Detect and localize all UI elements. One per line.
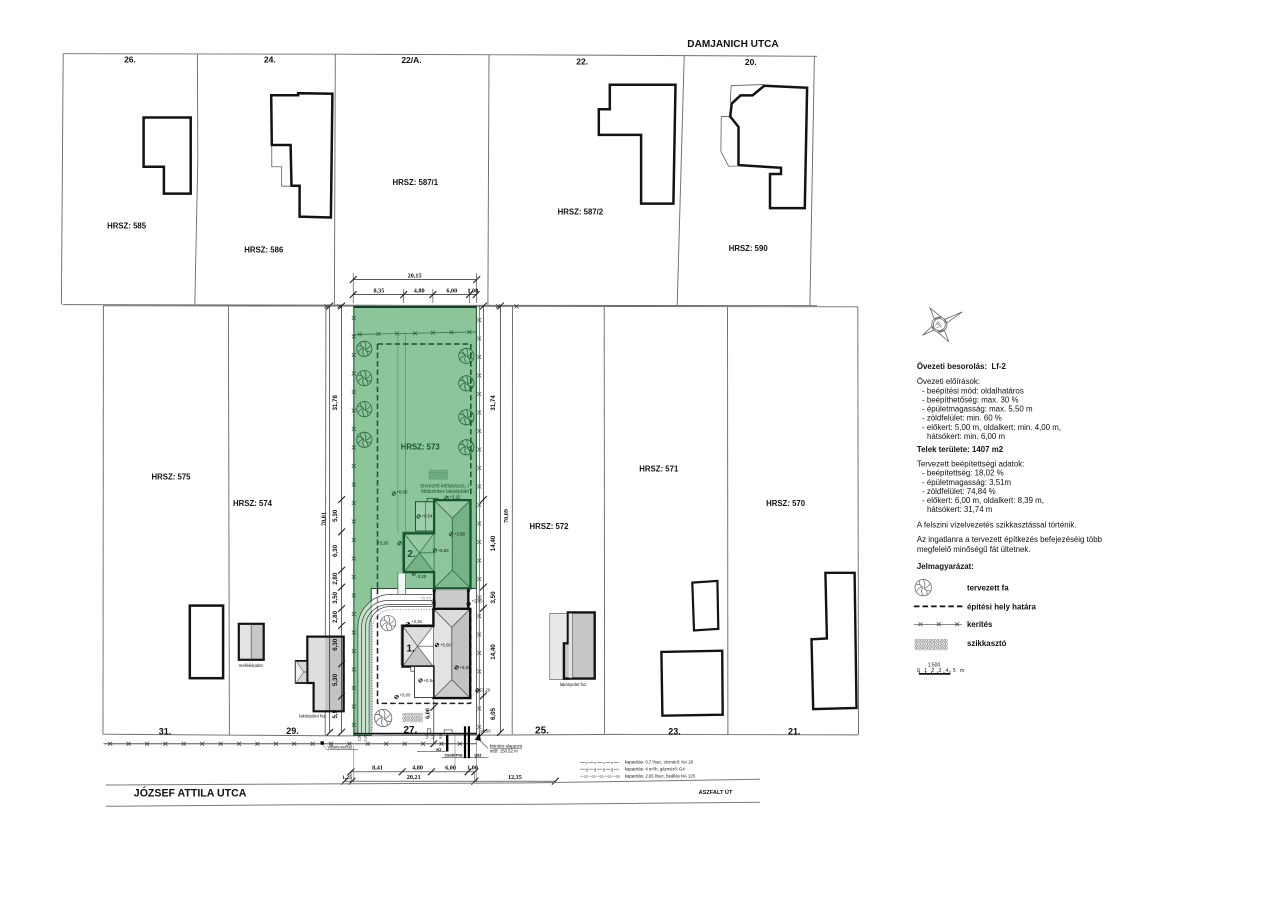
svg-text:3,50: 3,50 xyxy=(332,591,339,604)
svg-text:2.: 2. xyxy=(407,549,416,560)
svg-text:+5,60: +5,60 xyxy=(460,665,471,670)
svg-text:- előkert: 6,00 m, oldalkert:: - előkert: 6,00 m, oldalkert: 8,39 m, xyxy=(922,496,1044,505)
svg-text:építési hely határa: építési hely határa xyxy=(967,602,1036,611)
svg-text:cs: cs xyxy=(584,775,588,779)
svg-text:HRSZ: 585: HRSZ: 585 xyxy=(107,222,147,231)
svg-text:lakóépület fsz.: lakóépület fsz. xyxy=(299,714,326,719)
svg-text:JÓZSEF ATTILA UTCA: JÓZSEF ATTILA UTCA xyxy=(134,787,247,800)
svg-text:8,41: 8,41 xyxy=(372,764,383,771)
svg-text:HRSZ: 573: HRSZ: 573 xyxy=(401,442,441,451)
svg-text:+5,63: +5,63 xyxy=(438,548,449,553)
svg-text:cs: cs xyxy=(608,775,612,779)
svg-text:HRSZ: 574: HRSZ: 574 xyxy=(233,499,273,508)
svg-text:6,30: 6,30 xyxy=(332,544,339,557)
svg-text:v: v xyxy=(586,761,588,765)
svg-text:szikkasztó: szikkasztó xyxy=(967,639,1007,648)
svg-text:6,05: 6,05 xyxy=(490,707,497,720)
svg-text:földszintes lakóépület: földszintes lakóépület xyxy=(421,489,469,495)
svg-text:14,40: 14,40 xyxy=(490,535,497,551)
svg-text:+0,00: +0,00 xyxy=(397,489,408,494)
svg-text:+0,54: +0,54 xyxy=(424,678,435,683)
svg-text:14,40: 14,40 xyxy=(490,644,497,660)
svg-text:6,00: 6,00 xyxy=(445,764,456,771)
svg-text:megfelelő minőségű fát ültetne: megfelelő minőségű fát ültetnek. xyxy=(917,545,1031,554)
svg-text:g: g xyxy=(611,768,613,772)
svg-text:-3,20: -3,20 xyxy=(416,574,426,579)
svg-text:70,01: 70,01 xyxy=(320,512,327,526)
svg-text:+3,26: +3,26 xyxy=(411,619,422,624)
svg-text:70,09: 70,09 xyxy=(503,509,510,523)
svg-text:kerítés: kerítés xyxy=(967,620,993,629)
svg-text:31,74: 31,74 xyxy=(490,395,497,411)
svg-text:A felszini vízelvezetés szikka: A felszini vízelvezetés szikkasztással t… xyxy=(917,521,1077,530)
svg-text:22.: 22. xyxy=(576,57,588,67)
svg-text:- beépíthetőség: max. 30 %: - beépíthetőség: max. 30 % xyxy=(922,395,1019,404)
svg-text:ASZFALT ÚT: ASZFALT ÚT xyxy=(699,789,733,796)
svg-text:HRSZ: 586: HRSZ: 586 xyxy=(244,246,284,255)
svg-text:HRSZ: 587/2: HRSZ: 587/2 xyxy=(558,207,604,216)
svg-text:1,00: 1,00 xyxy=(467,287,478,294)
svg-text:24.: 24. xyxy=(264,55,276,65)
svg-text:-3,20: -3,20 xyxy=(481,688,491,693)
svg-text:5,30: 5,30 xyxy=(332,509,339,522)
svg-text:6,00: 6,00 xyxy=(425,708,432,719)
svg-text:5,9: 5,9 xyxy=(332,709,339,718)
svg-text:HRSZ: 587/1: HRSZ: 587/1 xyxy=(393,178,439,187)
svg-text:1,50: 1,50 xyxy=(431,733,435,739)
svg-text:2,80: 2,80 xyxy=(332,572,339,585)
svg-text:csatorna: csatorna xyxy=(445,753,464,758)
svg-text:Övezeti besorolás: Lf-2: Övezeti besorolás: Lf-2 xyxy=(917,362,1007,371)
svg-text:g: g xyxy=(594,768,596,772)
svg-text:Az ingatlanra a tervezett épít: Az ingatlanra a tervezett építkezés befe… xyxy=(917,535,1103,544)
svg-text:31.: 31. xyxy=(159,727,172,737)
svg-text:kapacitás: 0,7 l/sec, vízmérő:: kapacitás: 0,7 l/sec, vízmérő: NA 20 xyxy=(625,760,694,765)
svg-text:+5,60: +5,60 xyxy=(440,642,451,647)
svg-text:1,90: 1,90 xyxy=(364,735,368,741)
svg-text:0 1 2 3 4 5 m: 0 1 2 3 4 5 m xyxy=(917,668,966,674)
svg-text:- épületmagasság: 3,51m: - épületmagasság: 3,51m xyxy=(922,478,1011,487)
svg-text:- zöldfelület: 74,84 %: - zöldfelület: 74,84 % xyxy=(922,487,996,496)
svg-text:v: v xyxy=(611,761,613,765)
svg-text:+3,22: +3,22 xyxy=(450,494,461,499)
svg-text:31,78: 31,78 xyxy=(332,394,339,410)
svg-text:22/A.: 22/A. xyxy=(401,55,421,65)
svg-text:melléképület: melléképület xyxy=(239,663,264,668)
svg-text:cs: cs xyxy=(592,775,596,779)
svg-text:4,80: 4,80 xyxy=(412,764,423,771)
svg-text:2,80: 2,80 xyxy=(332,610,339,623)
svg-text:4,80: 4,80 xyxy=(414,287,425,294)
svg-text:DAMJANICH UTCA: DAMJANICH UTCA xyxy=(687,39,779,50)
svg-text:+3,20: +3,20 xyxy=(377,540,388,545)
svg-text:kapacitás: 4 m³/h, gázmérő: G4: kapacitás: 4 m³/h, gázmérő: G4 xyxy=(625,767,686,772)
svg-text:20.: 20. xyxy=(745,57,757,67)
svg-text:20,21: 20,21 xyxy=(407,774,421,781)
svg-text:cs: cs xyxy=(616,775,620,779)
svg-text:+3,58: +3,58 xyxy=(454,532,465,537)
svg-text:29.: 29. xyxy=(286,726,299,736)
svg-text:25.: 25. xyxy=(535,725,549,736)
svg-text:HRSZ: 571: HRSZ: 571 xyxy=(639,464,679,473)
svg-text:6,00: 6,00 xyxy=(446,287,457,294)
svg-text:- zöldfelület: min. 60 %: - zöldfelület: min. 60 % xyxy=(922,414,1002,423)
svg-text:v: v xyxy=(603,761,605,765)
svg-text:23.: 23. xyxy=(668,726,681,736)
svg-text:víz: víz xyxy=(436,747,442,752)
svg-text:Tervezett beépítettségi adatok: Tervezett beépítettségi adatok: xyxy=(917,460,1024,469)
svg-text:R20: R20 xyxy=(439,733,443,739)
svg-text:cs: cs xyxy=(600,775,604,779)
svg-text:1,00: 1,00 xyxy=(467,764,478,771)
svg-text:hátsókert: min. 6,00 m: hátsókert: min. 6,00 m xyxy=(927,432,1005,441)
svg-text:3,50: 3,50 xyxy=(490,591,497,604)
svg-text:- beépítettség: 18,02 %: - beépítettség: 18,02 % xyxy=(922,469,1004,478)
svg-text:hátsókert: 31,74 m: hátsókert: 31,74 m xyxy=(927,505,993,514)
svg-text:21.: 21. xyxy=(788,726,801,736)
svg-text:HRSZ: 590: HRSZ: 590 xyxy=(729,244,769,253)
svg-text:Jelmagyarázat:: Jelmagyarázat: xyxy=(917,562,974,571)
svg-text:mBf: 150,52 m: mBf: 150,52 m xyxy=(490,749,518,754)
svg-text:1,00: 1,00 xyxy=(425,733,429,739)
svg-text:26.: 26. xyxy=(124,54,136,64)
svg-text:+0,54: +0,54 xyxy=(422,514,433,519)
svg-text:g: g xyxy=(586,768,588,772)
svg-text:g: g xyxy=(603,768,605,772)
svg-text:- előkert: 5,00 m, oldalkert:: - előkert: 5,00 m, oldalkert: min. 4,00 … xyxy=(922,423,1061,432)
svg-text:1.: 1. xyxy=(407,643,416,654)
svg-text:Övezeti előírások:: Övezeti előírások: xyxy=(917,377,980,386)
svg-text:HRSZ: 572: HRSZ: 572 xyxy=(530,522,570,531)
svg-text:Telek területe: 1407 m2: Telek területe: 1407 m2 xyxy=(917,445,1004,454)
svg-text:gáz: gáz xyxy=(474,753,481,758)
svg-text:v: v xyxy=(594,761,596,765)
svg-text:1,25: 1,25 xyxy=(342,775,352,781)
svg-text:tervezett fa: tervezett fa xyxy=(967,583,1009,592)
svg-text:HRSZ: 575: HRSZ: 575 xyxy=(152,473,192,482)
svg-text:5,30: 5,30 xyxy=(332,673,339,686)
svg-text:HRSZ: 570: HRSZ: 570 xyxy=(766,499,806,508)
svg-text:lakóépület fsz.: lakóépület fsz. xyxy=(560,682,587,687)
svg-text:- épületmagasság: max. 5,50 m: - épületmagasság: max. 5,50 m xyxy=(922,405,1033,414)
svg-text:6,30: 6,30 xyxy=(332,638,339,651)
svg-text:20,15: 20,15 xyxy=(408,272,422,279)
svg-text:8,35: 8,35 xyxy=(373,287,384,294)
svg-text:kapacitás: 2,65 l/sec, beállás: kapacitás: 2,65 l/sec, beállás NA 125 xyxy=(625,774,696,779)
svg-text:1,50: 1,50 xyxy=(358,735,362,741)
svg-text:12,35: 12,35 xyxy=(508,774,522,781)
svg-text:+0,00: +0,00 xyxy=(400,692,411,697)
svg-text:27.: 27. xyxy=(403,725,417,736)
svg-text:+2,80: +2,80 xyxy=(472,598,483,603)
svg-text:- beépítési mód: oldalhatáros: - beépítési mód: oldalhatáros xyxy=(922,386,1024,395)
svg-text:villanyoszlop: villanyoszlop xyxy=(328,745,353,750)
